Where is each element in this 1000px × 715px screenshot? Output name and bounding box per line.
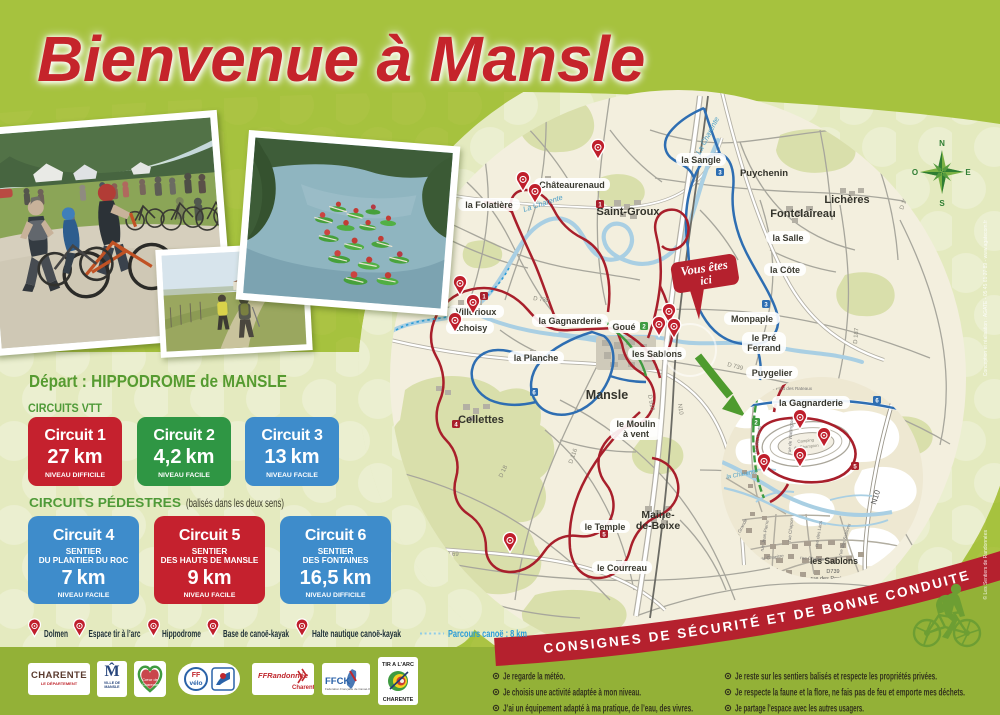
svg-text:E: E (965, 168, 971, 177)
svg-text:O: O (912, 168, 918, 177)
svg-text:N: N (939, 139, 945, 148)
svg-text:Conception et réalisation : AG: Conception et réalisation : AGATE - 05 4… (983, 220, 989, 376)
svg-text:Espace tir à l’arc: Espace tir à l’arc (89, 628, 141, 640)
svg-text:Je regarde la météo.: Je regarde la météo. (503, 671, 565, 683)
svg-text:Je respecte la faune et la flo: Je respecte la faune et la flore, ne fai… (735, 687, 965, 699)
svg-text:Je partage l’espace avec les a: Je partage l’espace avec les autres usag… (735, 703, 864, 715)
svg-text:Je reste sur les sentiers bali: Je reste sur les sentiers balisés et res… (735, 671, 937, 683)
svg-text:CIRCUITS PÉDESTRES: CIRCUITS PÉDESTRES (29, 495, 181, 510)
svg-text:Dolmen: Dolmen (44, 628, 68, 640)
svg-text:Parcours canoë : 8 km: Parcours canoë : 8 km (448, 628, 527, 640)
svg-text:(balisés dans les deux sens): (balisés dans les deux sens) (186, 496, 284, 510)
svg-text:Base de canoë-kayak: Base de canoë-kayak (223, 628, 289, 640)
svg-text:J’ai un équipement adapté à ma: J’ai un équipement adapté à ma pratique,… (503, 703, 693, 715)
svg-text:Je choisis une activité adapté: Je choisis une activité adaptée à mon ni… (503, 687, 641, 699)
svg-text:Départ : HIPPODROME de MANSLE: Départ : HIPPODROME de MANSLE (29, 371, 287, 391)
svg-text:CIRCUITS VTT: CIRCUITS VTT (28, 401, 103, 415)
svg-text:Hippodrome: Hippodrome (162, 628, 201, 640)
svg-text:Halte nautique canoë-kayak: Halte nautique canoë-kayak (312, 628, 401, 640)
svg-text:Cartographie : © IGN - Scan 25: Cartographie : © IGN - Scan 25 - Autoris… (982, 530, 989, 600)
svg-text:S: S (939, 199, 945, 208)
